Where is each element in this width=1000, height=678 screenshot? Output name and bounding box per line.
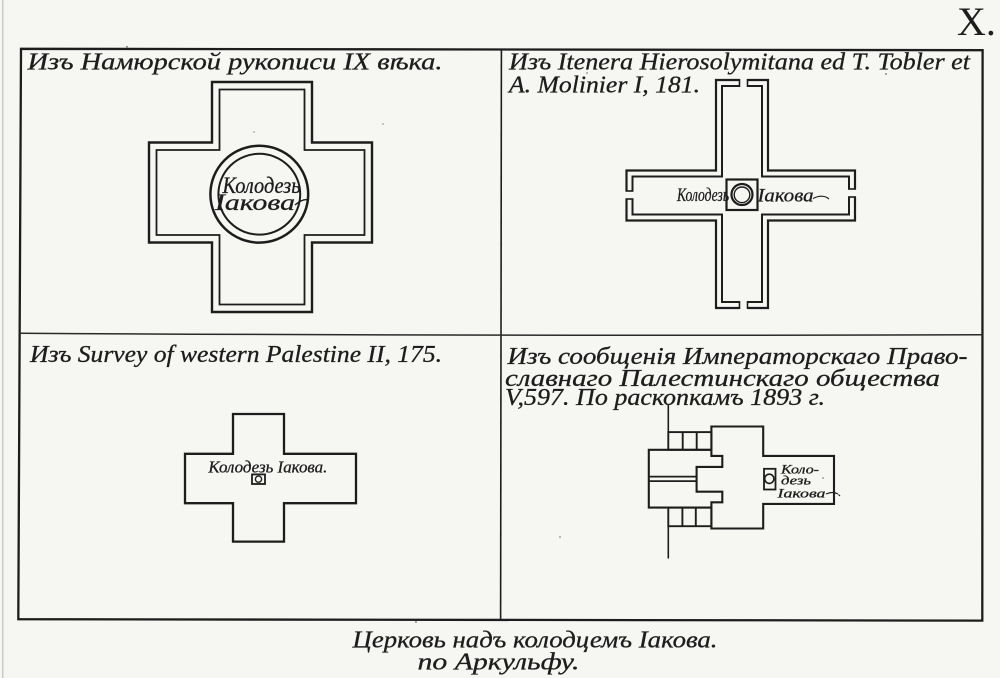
svg-text:Іакова: Іакова	[776, 486, 826, 501]
svg-text:Колодезь: Колодезь	[676, 185, 729, 206]
svg-text:Колодезь Іакова.: Колодезь Іакова.	[207, 458, 327, 477]
svg-text:по Аркульфу.: по Аркульфу.	[418, 650, 580, 676]
svg-text:X.: X.	[957, 0, 996, 44]
svg-text:А. Molinier І, 181.: А. Molinier І, 181.	[507, 73, 700, 99]
svg-text:V,597. По раскопкамъ 1893 г.: V,597. По раскопкамъ 1893 г.	[505, 385, 825, 411]
svg-text:Іакова: Іакова	[214, 190, 295, 215]
svg-text:Изъ Survey of western Palestin: Изъ Survey of western Palestine ІІ, 175.	[29, 342, 442, 368]
svg-text:Изъ Намюрской рукописи ІХ вѣка: Изъ Намюрской рукописи ІХ вѣка.	[26, 50, 442, 76]
svg-text:Іакова: Іакова	[756, 186, 813, 207]
